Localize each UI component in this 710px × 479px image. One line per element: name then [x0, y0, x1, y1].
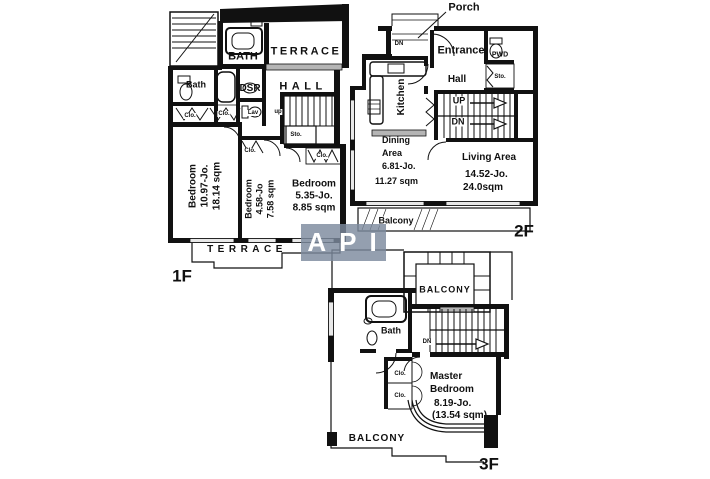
stair-label-up-1f: up: [273, 109, 282, 115]
room-label-pwd-2f: PWD: [492, 52, 508, 59]
room-label-lav-1f: Lav: [247, 110, 259, 116]
closet-label-bed2-1f: Clo.: [243, 148, 256, 154]
room-label-living-2f: Living Area 14.52-Jo. 24.0sqm: [462, 152, 516, 193]
room-label-bath-upper-1f: BATH: [228, 52, 258, 63]
closet-label-b-1f: Clo.: [217, 111, 230, 117]
floor-label-2f: 2F: [514, 223, 534, 240]
room-label-bedroom1-1f: Bedroom 10.97-Jo. 18.14 sqm: [188, 162, 225, 210]
room-label-bedroom3-1f: Bedroom 5.35-Jo. 8.85 sqm: [292, 178, 336, 213]
dining-jo: 6.81-Jo.: [382, 161, 418, 172]
floor-1f-stairs-exterior: [170, 12, 218, 66]
floor-plan-canvas: BATH TERRACE Bath DSR HALL Lav up Sto. C…: [0, 0, 710, 479]
bedroom1-jo: 10.97-Jo.: [200, 162, 212, 210]
stair-label-up-2f: UP: [452, 97, 467, 106]
living-name: Living Area: [462, 152, 516, 164]
porch-dn-label-2f: DN: [394, 41, 405, 47]
master-sqm: (13.54 sqm): [432, 410, 487, 422]
room-label-master-bedroom-3f: Master Bedroom 8.19-Jo. (13.54 sqm): [430, 371, 487, 422]
floor-3f-balcony-upper: [404, 252, 490, 312]
label-balcony-lower-3f: BALCONY: [349, 434, 405, 444]
bedroom3-name: Bedroom: [292, 178, 336, 190]
kitchen-name: Kitchen: [396, 79, 408, 116]
dining-line1: Dining: [382, 135, 418, 146]
bedroom2-jo: 4.58-Jo: [255, 179, 266, 219]
label-balcony-upper-3f: BALCONY: [419, 286, 471, 295]
room-label-entrance-2f: Entrance: [437, 46, 484, 57]
room-label-kitchen-2f: Kitchen: [396, 79, 408, 116]
closet-label-bed3-1f: Clo.: [315, 153, 328, 159]
bedroom3-jo: 5.35-Jo.: [292, 190, 336, 202]
floor-label-3f: 3F: [479, 456, 499, 473]
dining-line2: Area: [382, 148, 418, 159]
room-label-bath-left-1f: Bath: [186, 81, 206, 90]
room-label-bath-3f: Bath: [381, 327, 401, 336]
stair-label-sto-1f: Sto.: [289, 132, 302, 138]
floor-3f-stairs: [430, 309, 504, 352]
floor-3f-closets: [388, 357, 422, 409]
label-porch-2f: Porch: [448, 3, 479, 14]
living-jo: 14.52-Jo.: [465, 169, 516, 181]
closet-label-a-1f: Clo.: [183, 113, 196, 119]
closet-label-b-3f: Clo.: [393, 393, 406, 399]
room-label-dsr-1f: DSR: [239, 84, 260, 94]
room-label-hall-2f: Hall: [448, 75, 466, 85]
room-label-terrace-upper-1f: TERRACE: [271, 47, 342, 58]
floor-3f-windows: [329, 302, 475, 336]
room-label-bedroom2-1f: Bedroom 4.58-Jo 7.58 sqm: [244, 179, 277, 219]
room-label-hall-1f: HALL: [279, 82, 326, 93]
room-label-dining-2f: Dining Area 6.81-Jo. 11.27 sqm: [382, 135, 418, 186]
bedroom2-name: Bedroom: [244, 179, 255, 219]
bedroom1-name: Bedroom: [188, 162, 200, 210]
master-line1: Master: [430, 371, 487, 383]
living-sqm: 24.0sqm: [463, 182, 516, 194]
stair-label-dn-2f: DN: [451, 118, 466, 127]
master-line2: Bedroom: [430, 384, 487, 396]
stair-label-dn-3f: DN: [422, 339, 433, 345]
master-jo: 8.19-Jo.: [434, 398, 487, 410]
watermark-overlay: API: [301, 224, 386, 261]
bedroom3-sqm: 8.85 sqm: [292, 202, 336, 214]
floor-label-1f: 1F: [172, 268, 192, 285]
bedroom1-sqm: 18.14 sqm: [212, 162, 224, 210]
floor-2f-stairs: [438, 94, 518, 138]
room-label-terrace-lower-1f: TERRACE: [207, 245, 287, 255]
closet-label-a-3f: Clo.: [393, 371, 406, 377]
bedroom2-sqm: 7.58 sqm: [265, 179, 276, 219]
room-label-sto-2f: Sto.: [493, 74, 506, 80]
dining-sqm: 11.27 sqm: [375, 176, 418, 187]
